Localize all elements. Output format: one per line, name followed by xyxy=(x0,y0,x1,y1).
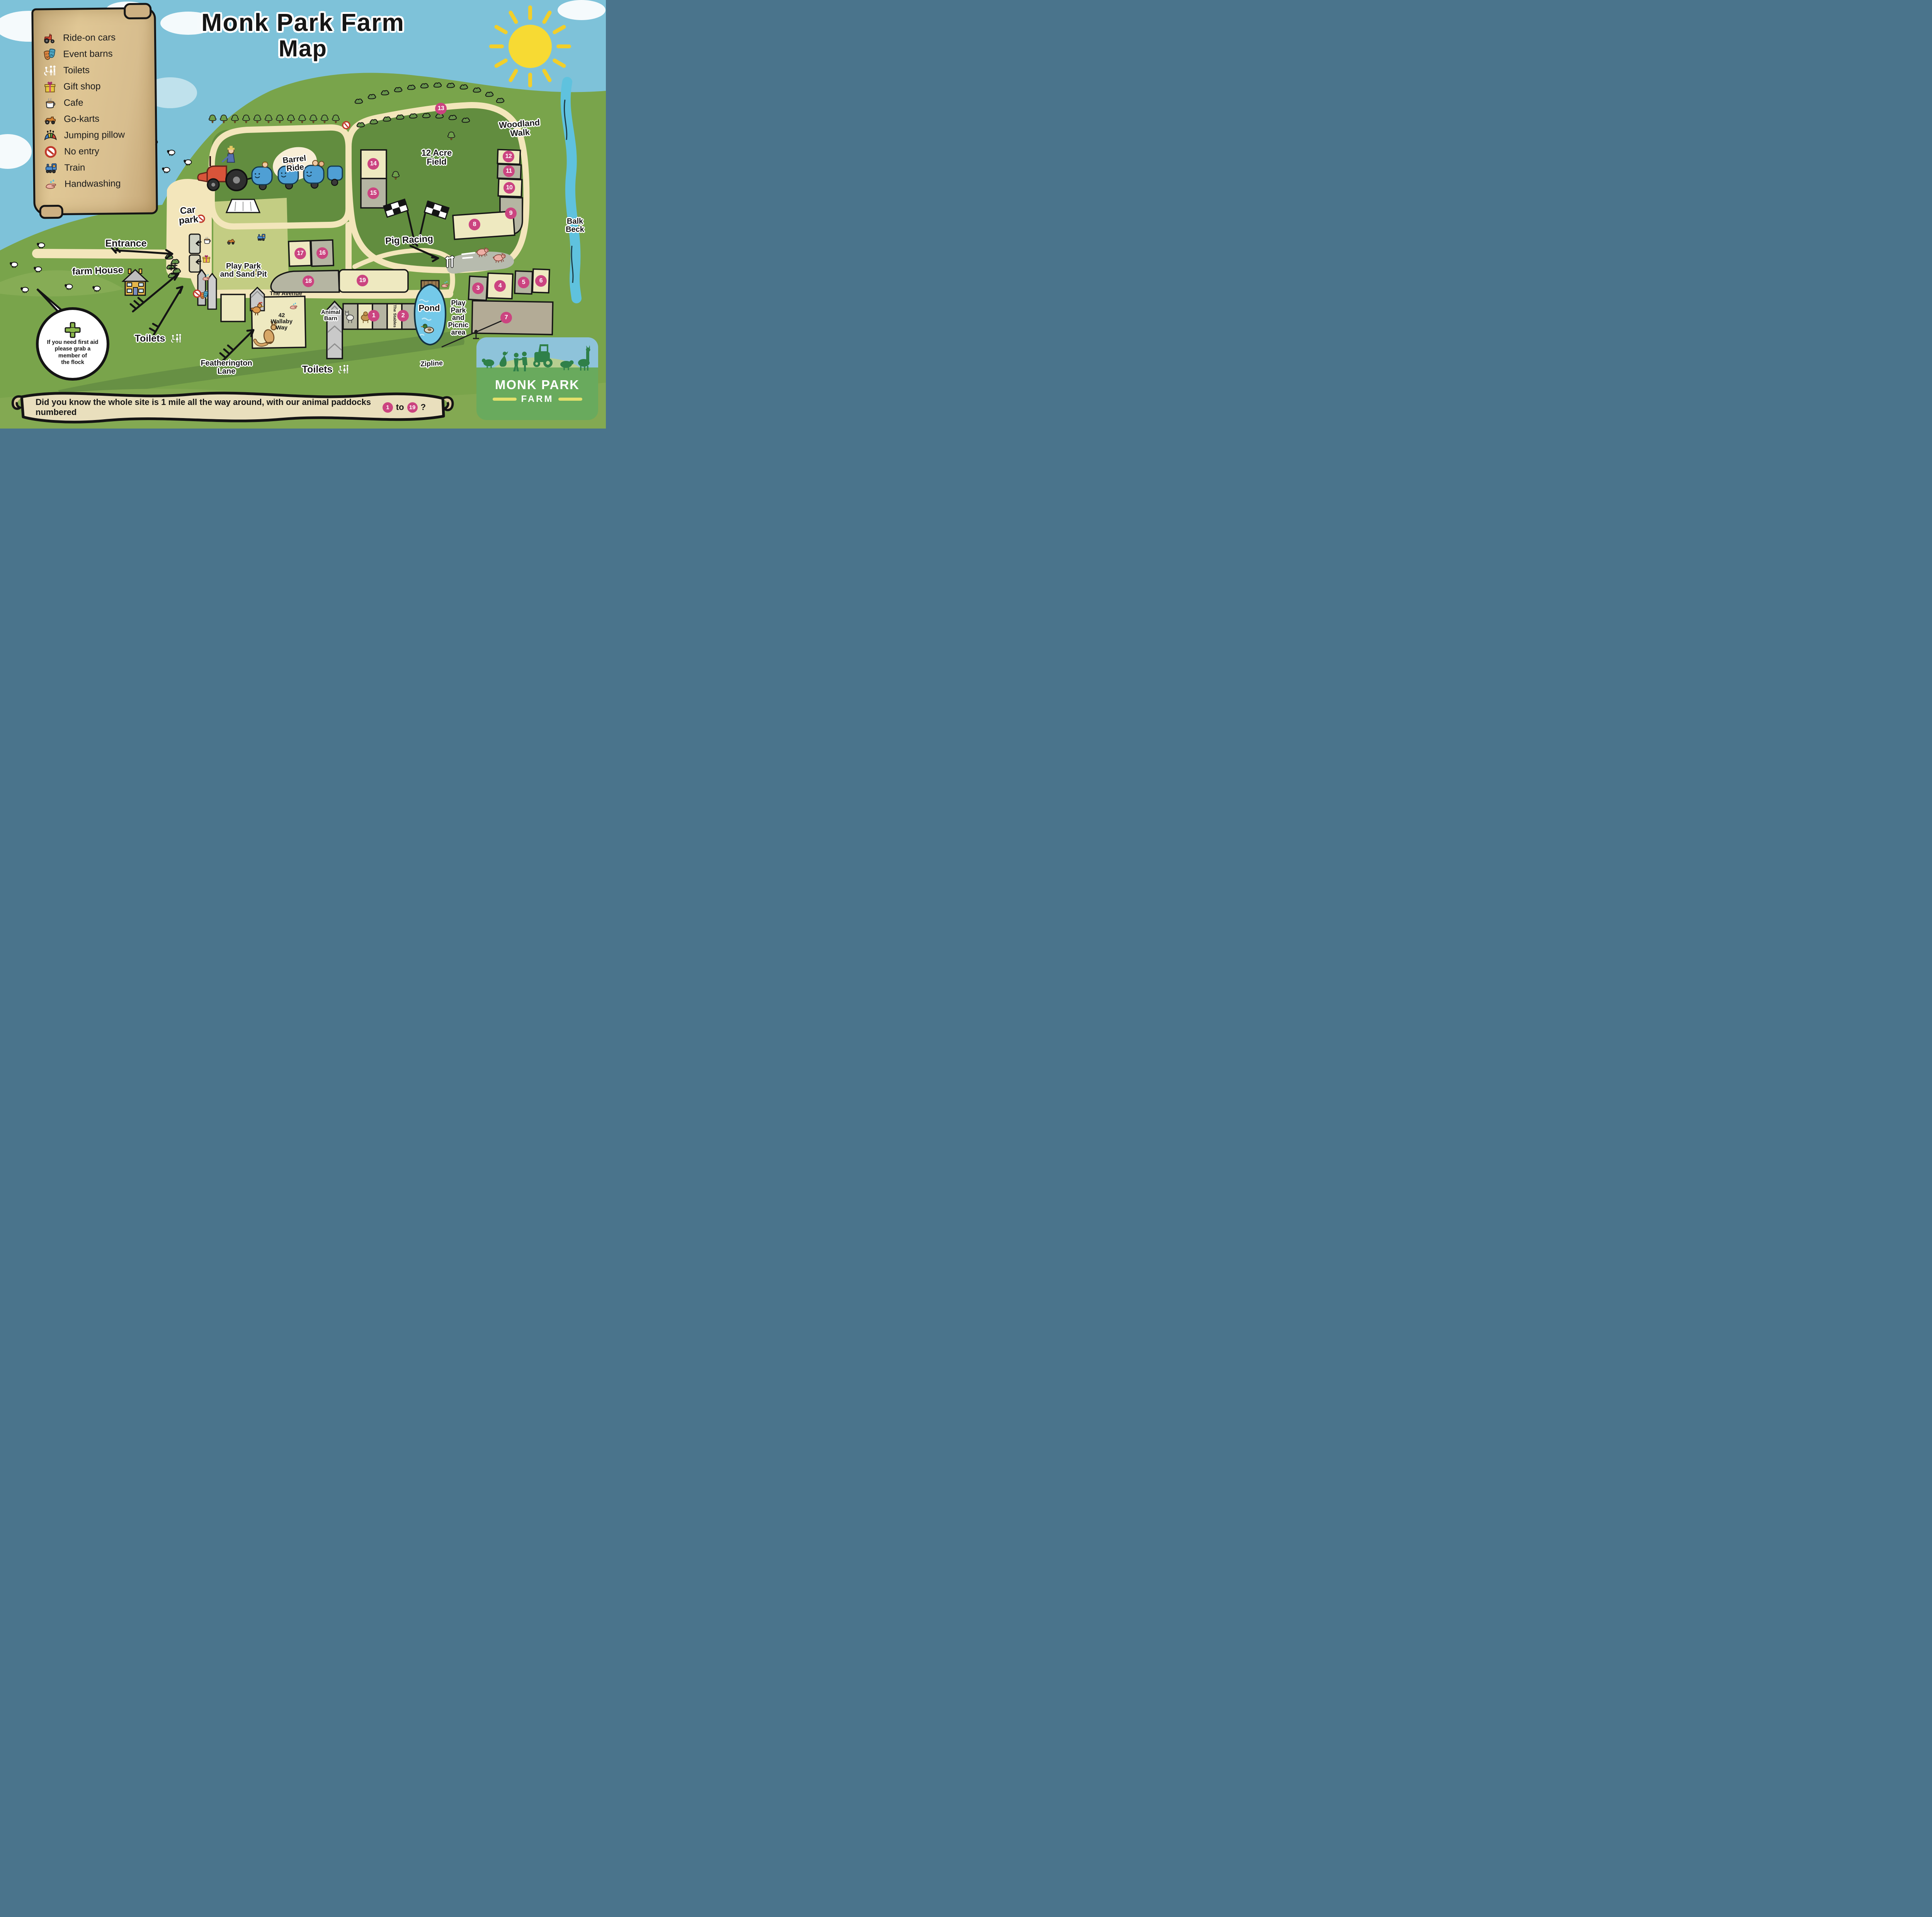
paddock-badge-2: 2 xyxy=(397,310,409,321)
label-toilets-west: Toilets xyxy=(135,333,184,344)
label-42-wallaby-way: 42 Wallaby Way xyxy=(271,312,293,330)
paddock-badge-13: 13 xyxy=(435,103,447,114)
logo-name-line-1: MONK PARK xyxy=(476,378,598,392)
paddock-badge-4: 4 xyxy=(494,280,506,292)
jumping-pillow-icon xyxy=(44,129,57,142)
label-featherington-lane: Featherington Lane xyxy=(201,359,252,376)
legend-scroll: Ride-on cars Event barns Toilets Gift sh… xyxy=(31,7,158,215)
legend-label: Event barns xyxy=(63,49,112,60)
first-aid-bubble: If you need first aid please grab a memb… xyxy=(36,307,109,381)
entrance-buildings xyxy=(189,234,200,272)
paddock-badge-15: 15 xyxy=(367,187,379,199)
ride-on-cars-icon xyxy=(43,32,56,45)
label-woodland-walk: Woodland Walk xyxy=(499,118,541,138)
pond xyxy=(415,284,446,345)
logo-name-line-2: FARM xyxy=(521,394,554,405)
legend-item-no-entry: No entry xyxy=(44,145,125,158)
legend-item-go-karts: Go-karts xyxy=(44,112,125,126)
legend-label: Train xyxy=(64,162,85,173)
legend-list: Ride-on cars Event barns Toilets Gift sh… xyxy=(43,31,126,191)
logo-illustration xyxy=(476,337,598,374)
paddock-badge-5: 5 xyxy=(518,277,529,288)
label-the-avenue: The Avenue xyxy=(270,291,302,297)
legend-item-ride-on-cars: Ride-on cars xyxy=(43,31,124,45)
logo-dash xyxy=(558,398,582,401)
paddock-badge-11: 11 xyxy=(503,165,515,177)
paddock-badge-16: 16 xyxy=(316,247,328,259)
legend-label: Gift shop xyxy=(63,81,100,92)
label-pig-racing: Pig Racing xyxy=(385,234,433,246)
legend-label: Handwashing xyxy=(65,178,121,190)
paddock-badge-12: 12 xyxy=(503,151,514,162)
legend-item-handwashing: Handwashing xyxy=(44,177,126,191)
label-barrel-ride: Barrel Ride xyxy=(282,154,308,173)
paddock-badge-1: 1 xyxy=(368,310,379,321)
scroll-curl xyxy=(124,3,151,19)
toilets-icon xyxy=(43,64,56,77)
toilets-icon xyxy=(168,333,184,344)
banner-text-after: ? xyxy=(421,402,426,412)
legend-item-cafe: Cafe xyxy=(44,96,125,110)
label-12-acre-field: 12 Acre Field xyxy=(422,148,452,166)
banner-text: Did you know the whole site is 1 mile al… xyxy=(36,397,426,417)
paddock-badge-7: 7 xyxy=(500,312,512,323)
paddock-badge-19: 19 xyxy=(357,275,368,286)
event-barns-icon xyxy=(43,48,56,61)
legend-item-gift-shop: Gift shop xyxy=(43,80,124,94)
cafe-icon xyxy=(44,97,57,110)
paddock-badge-18: 18 xyxy=(303,276,314,287)
title-line-2: Map xyxy=(201,37,405,60)
farm-logo: MONK PARK FARM xyxy=(476,337,598,420)
legend-label: Jumping pillow xyxy=(64,129,125,141)
legend-item-toilets: Toilets xyxy=(43,63,124,77)
logo-dash xyxy=(493,398,517,401)
banner-text-middle: to xyxy=(396,402,404,412)
label-balk-beck: Balk Beck xyxy=(566,218,584,234)
label-play-park-picnic: Play Park and Picnic area xyxy=(448,299,468,336)
paddock-badge-9: 9 xyxy=(505,208,517,219)
toilets-south-text: Toilets xyxy=(302,364,333,374)
toilets-west-text: Toilets xyxy=(135,333,165,344)
go-karts-icon xyxy=(44,113,57,126)
paddock-badge-14: 14 xyxy=(367,158,379,170)
label-entrance: Entrance xyxy=(105,238,147,248)
no-entry-icon xyxy=(44,145,57,158)
label-farm-house: farm House xyxy=(72,265,124,277)
legend-item-train: Train xyxy=(44,161,125,175)
toilets-icon xyxy=(335,364,351,375)
no-entry-icon xyxy=(342,121,350,129)
monk-park-farm-map: Ride-on cars Event barns Toilets Gift sh… xyxy=(0,0,606,429)
scroll-curl xyxy=(39,205,63,219)
label-animal-barn: Animal Barn xyxy=(321,309,340,321)
handwashing-icon xyxy=(44,178,58,191)
legend-label: Toilets xyxy=(63,65,90,76)
first-aid-cross-icon xyxy=(65,322,81,338)
banner-text-before: Did you know the whole site is 1 mile al… xyxy=(36,397,379,417)
banner-badge-1: 1 xyxy=(383,402,393,413)
banner-badge-19: 19 xyxy=(407,402,418,413)
legend-label: Go-karts xyxy=(64,114,99,125)
label-play-park-sand-pit: Play Park and Sand Pit xyxy=(220,262,267,279)
label-pond: Pond xyxy=(419,303,440,312)
paddock-badge-6: 6 xyxy=(535,275,547,287)
legend-label: No entry xyxy=(64,146,99,157)
label-the-stables: The Stables xyxy=(393,305,397,328)
paddock-badge-17: 17 xyxy=(294,248,306,259)
paddock-badge-3: 3 xyxy=(472,282,484,294)
paddock-badge-8: 8 xyxy=(469,219,480,230)
legend-item-event-barns: Event barns xyxy=(43,47,124,61)
legend-label: Ride-on cars xyxy=(63,32,116,43)
gift-shop-icon xyxy=(43,80,56,94)
page-title: Monk Park Farm Map xyxy=(201,10,405,60)
label-car-park: Car park xyxy=(178,205,199,226)
first-aid-text: If you need first aid please grab a memb… xyxy=(47,339,99,366)
title-line-1: Monk Park Farm xyxy=(201,10,405,35)
train-icon xyxy=(44,162,57,175)
label-toilets-south: Toilets xyxy=(302,364,351,375)
label-zipline: Zipline xyxy=(420,359,443,368)
paddock-badge-10: 10 xyxy=(503,182,515,194)
event-tent xyxy=(226,199,260,213)
no-entry-icon xyxy=(194,290,201,297)
legend-label: Cafe xyxy=(64,97,83,109)
legend-item-jumping-pillow: Jumping pillow xyxy=(44,128,125,142)
